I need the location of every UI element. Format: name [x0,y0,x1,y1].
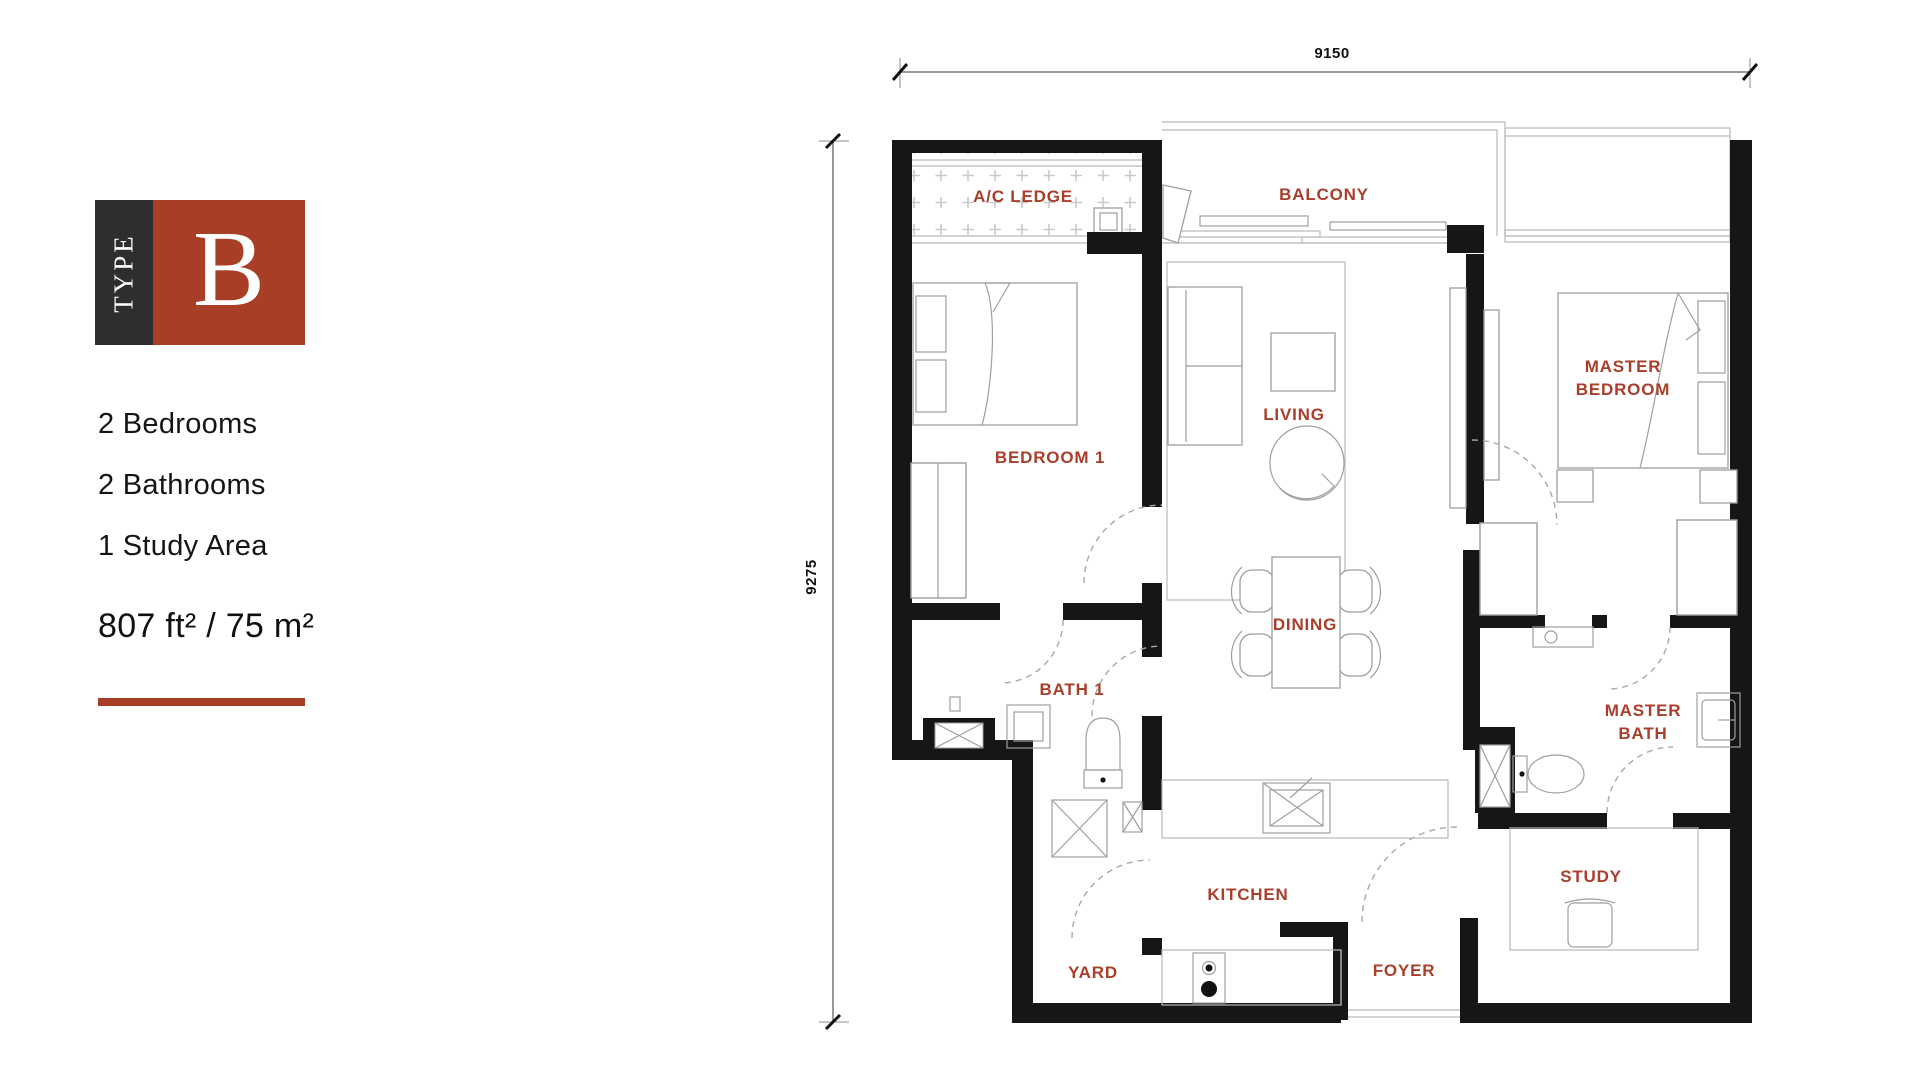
type-badge-letter: B [153,200,305,345]
dimension-width-label: 9150 [1314,45,1349,62]
unit-features-list: 2 Bedrooms 2 Bathrooms 1 Study Area [98,408,268,591]
type-badge: TYPE B [95,200,305,345]
stove-icon [1193,953,1225,1003]
balcony-parapet [1162,122,1730,236]
room-label-master-bedroom-2: BEDROOM [1576,380,1670,399]
room-label-master-bath-2: BATH [1618,724,1667,743]
page: TYPE B 2 Bedrooms 2 Bathrooms 1 Study Ar… [0,0,1920,1080]
room-label-living: LIVING [1263,405,1324,424]
master-shower-icon [1480,745,1510,807]
room-label-foyer: FOYER [1373,961,1436,980]
list-item-bedrooms: 2 Bedrooms [98,408,268,469]
coffee-table-icon [1271,333,1335,391]
foyer-study [1348,828,1698,1017]
room-label-kitchen: KITCHEN [1207,885,1288,904]
yard-fixtures [1052,800,1142,857]
balcony-door-panel [1163,185,1191,243]
dimension-top: 9150 [893,45,1757,88]
bedroom1-bed [913,283,1077,425]
tv-console-icon [1450,288,1466,508]
floorplan-svg: 9150 9275 [790,20,1770,1060]
accent-rule [98,698,305,706]
living-window [1162,231,1466,243]
bedroom1-wardrobe [911,463,966,598]
dimension-height-label: 9275 [803,559,820,594]
room-label-ac-ledge: A/C LEDGE [973,187,1073,206]
study-chair-icon [1565,899,1615,947]
room-label-bedroom1: BEDROOM 1 [995,448,1105,467]
bath1-toilet-icon [1084,718,1122,788]
dimension-left: 9275 [803,134,849,1029]
type-label: TYPE [109,233,140,313]
room-label-balcony: BALCONY [1279,185,1369,204]
type-letter: B [193,216,265,324]
type-badge-word: TYPE [95,200,153,345]
master-window [1505,230,1730,242]
room-label-master-bedroom-1: MASTER [1585,357,1662,376]
floorplan: 9150 9275 [790,20,1770,1065]
faucet-icon [950,697,960,711]
room-label-study: STUDY [1560,867,1622,886]
vanity-counter-icon [1533,627,1593,647]
room-label-bath1: BATH 1 [1040,680,1105,699]
list-item-study: 1 Study Area [98,530,268,591]
living-furniture [1167,262,1466,600]
unit-area: 807 ft² / 75 m² [98,607,314,646]
room-label-master-bath-1: MASTER [1605,701,1682,720]
list-item-bathrooms: 2 Bathrooms [98,469,268,530]
room-label-dining: DINING [1273,615,1337,634]
room-label-yard: YARD [1068,963,1118,982]
